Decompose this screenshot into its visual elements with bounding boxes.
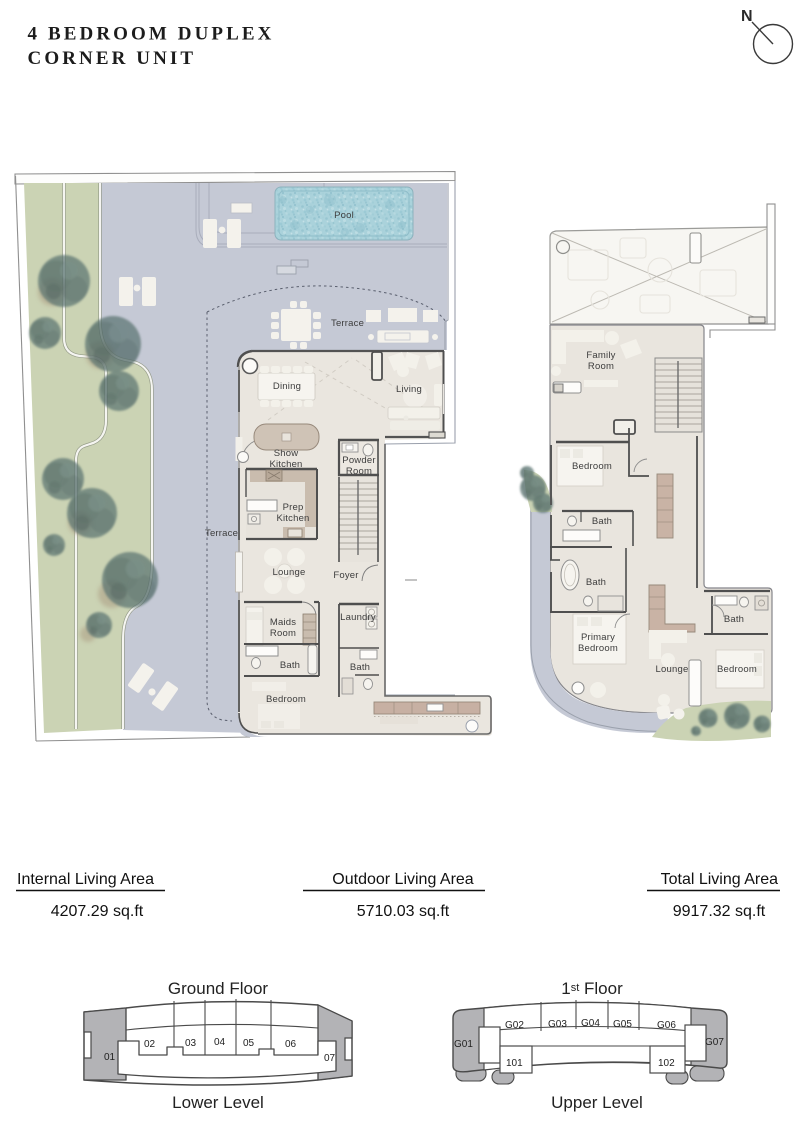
- svg-text:Prep: Prep: [283, 502, 304, 513]
- svg-text:07: 07: [324, 1053, 336, 1064]
- svg-text:Total Living Area: Total Living Area: [661, 871, 779, 888]
- svg-text:Internal Living Area: Internal Living Area: [17, 871, 154, 888]
- svg-text:Room: Room: [588, 361, 614, 372]
- svg-text:Room: Room: [346, 466, 372, 477]
- svg-text:9917.32 sq.ft: 9917.32 sq.ft: [673, 903, 766, 920]
- svg-text:Bedroom: Bedroom: [572, 461, 612, 472]
- svg-text:G01: G01: [454, 1039, 473, 1050]
- svg-text:Maids: Maids: [270, 617, 296, 628]
- svg-text:Lounge: Lounge: [656, 664, 689, 675]
- svg-text:101: 101: [506, 1058, 523, 1069]
- svg-text:G06: G06: [657, 1020, 676, 1031]
- svg-text:01: 01: [104, 1052, 116, 1063]
- svg-text:Foyer: Foyer: [333, 570, 358, 581]
- svg-text:Bath: Bath: [280, 660, 300, 671]
- svg-text:G05: G05: [613, 1019, 632, 1030]
- svg-text:Laundry: Laundry: [340, 612, 376, 623]
- svg-text:03: 03: [185, 1038, 197, 1049]
- svg-text:Bath: Bath: [592, 516, 612, 527]
- svg-text:1st Floor: 1st Floor: [561, 979, 623, 998]
- svg-text:G02: G02: [505, 1020, 524, 1031]
- svg-text:4 BEDROOM DUPLEX: 4 BEDROOM DUPLEX: [28, 24, 275, 45]
- svg-text:Bath: Bath: [724, 614, 744, 625]
- svg-text:Bedroom: Bedroom: [717, 664, 757, 675]
- svg-text:Outdoor Living Area: Outdoor Living Area: [332, 871, 474, 888]
- svg-text:Kitchen: Kitchen: [276, 513, 309, 524]
- svg-text:06: 06: [285, 1039, 297, 1050]
- svg-text:Family: Family: [586, 350, 615, 361]
- svg-text:G04: G04: [581, 1018, 600, 1029]
- svg-text:Terrace: Terrace: [205, 528, 238, 539]
- svg-text:Bath: Bath: [350, 662, 370, 673]
- svg-text:N: N: [741, 8, 753, 25]
- svg-text:Bath: Bath: [586, 577, 606, 588]
- svg-text:Terrace: Terrace: [331, 318, 364, 329]
- svg-text:Ground Floor: Ground Floor: [168, 979, 268, 998]
- svg-text:Lower Level: Lower Level: [172, 1093, 264, 1112]
- svg-text:Powder: Powder: [342, 455, 375, 466]
- svg-text:4207.29 sq.ft: 4207.29 sq.ft: [51, 903, 144, 920]
- svg-text:05: 05: [243, 1038, 255, 1049]
- svg-text:Bedroom: Bedroom: [578, 643, 618, 654]
- svg-text:Room: Room: [270, 628, 296, 639]
- svg-text:Upper Level: Upper Level: [551, 1093, 643, 1112]
- svg-text:5710.03 sq.ft: 5710.03 sq.ft: [357, 903, 450, 920]
- svg-text:Lounge: Lounge: [273, 567, 306, 578]
- svg-text:Primary: Primary: [581, 632, 615, 643]
- svg-text:G03: G03: [548, 1019, 567, 1030]
- svg-text:102: 102: [658, 1058, 675, 1069]
- svg-text:Living: Living: [396, 384, 422, 395]
- svg-text:04: 04: [214, 1037, 226, 1048]
- svg-text:G07: G07: [705, 1037, 724, 1048]
- svg-text:CORNER UNIT: CORNER UNIT: [28, 48, 197, 69]
- svg-text:Bedroom: Bedroom: [266, 694, 306, 705]
- svg-text:Pool: Pool: [334, 210, 354, 221]
- svg-text:02: 02: [144, 1039, 156, 1050]
- svg-text:Dining: Dining: [273, 381, 301, 392]
- svg-text:Show: Show: [274, 448, 299, 459]
